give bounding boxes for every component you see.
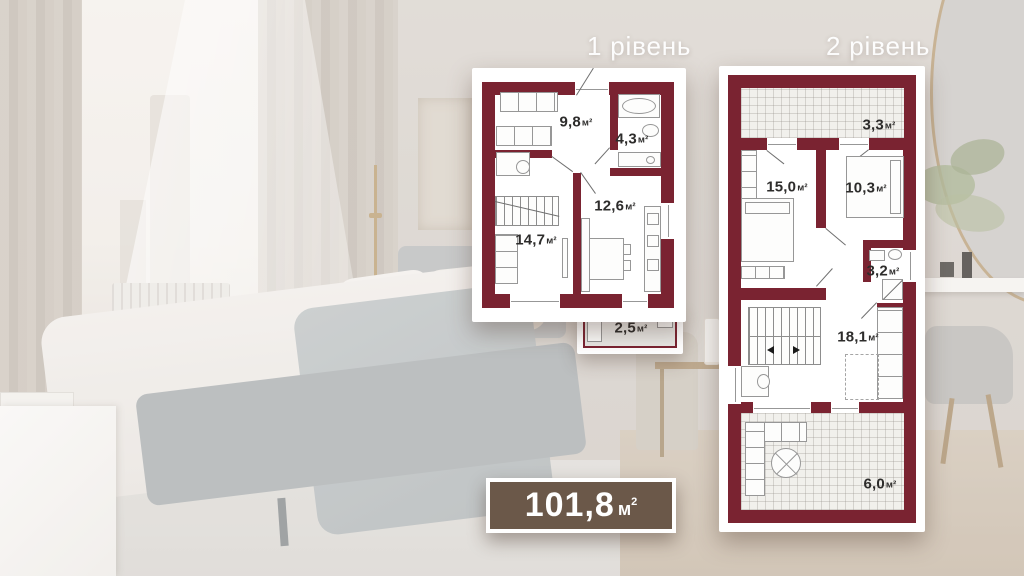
sofa <box>877 307 903 399</box>
wall-segment <box>741 288 826 300</box>
terrace-door-opening <box>839 138 869 150</box>
bathtub-basin <box>622 98 656 114</box>
bed-pillow <box>745 202 790 214</box>
door-leaf <box>825 228 846 245</box>
shower-diagonal <box>883 280 903 300</box>
balcony-door-opening <box>622 294 648 308</box>
sink <box>647 235 659 247</box>
plan2-panel: 3,3м² 15,0м² 10,3м² 3,2м² 18,1м² 6,0м² <box>719 66 925 532</box>
kitchen-counter <box>644 206 661 292</box>
area-unit: м² <box>797 183 808 194</box>
window-opening <box>753 402 811 413</box>
area-label-terrace-top: 3,3м² <box>862 117 895 134</box>
furniture-outline-dashed <box>845 354 879 400</box>
area-value: 14,7 <box>515 232 545 249</box>
area-value: 15,0 <box>766 179 796 196</box>
chair <box>623 260 631 271</box>
bench <box>741 266 785 279</box>
door-leaf <box>861 302 877 319</box>
wall-segment <box>728 75 916 88</box>
wardrobe <box>500 92 558 112</box>
stairs-landing-line <box>749 336 820 337</box>
area-label-hall2: 18,1м² <box>837 329 879 346</box>
total-area-power: 2 <box>631 496 637 508</box>
area-value: 10,3 <box>845 180 875 197</box>
total-area-value: 101,8 <box>525 486 615 525</box>
shower <box>882 279 903 300</box>
wall-segment <box>661 82 674 308</box>
wall-segment <box>816 150 826 228</box>
terrace-door-opening <box>831 402 859 413</box>
area-value: 4,3 <box>615 131 636 148</box>
tv-unit <box>562 238 568 278</box>
washbasin <box>869 250 885 261</box>
bathroom-door-leaf <box>595 147 610 164</box>
stairs <box>748 307 821 365</box>
terrace-door-opening <box>767 138 797 150</box>
area-unit: м² <box>889 267 900 278</box>
door-leaf <box>816 268 833 287</box>
stairs-arrow <box>767 346 774 354</box>
dining-table <box>588 238 624 280</box>
area-unit: м² <box>625 202 636 213</box>
window-opening <box>903 250 916 282</box>
bed <box>741 198 794 262</box>
area-label-balcony: 2,5м² <box>614 320 647 337</box>
washbasin-counter <box>618 152 661 167</box>
area-unit: м² <box>637 324 648 335</box>
office-chair <box>516 160 530 174</box>
wall-segment <box>573 173 581 294</box>
chair <box>623 244 631 255</box>
level1-title: 1 рівень <box>587 31 691 62</box>
wall-segment <box>610 168 663 176</box>
area-label-bathroom: 4,3м² <box>615 131 648 148</box>
bed-pillow <box>890 160 901 214</box>
area-value: 2,5 <box>614 320 635 337</box>
cabinet <box>496 126 552 146</box>
tall-cabinet <box>581 218 590 292</box>
window-opening <box>510 294 560 308</box>
plan1-panel: 9,8м² 4,3м² 12,6м² 14,7м² <box>472 68 686 322</box>
total-area-badge: 101,8 м 2 <box>486 478 676 533</box>
area-value: 12,6 <box>594 198 624 215</box>
wall-segment <box>728 75 741 523</box>
wall-segment <box>728 510 916 523</box>
area-label-bedroom-right: 10,3м² <box>845 180 887 197</box>
office-chair <box>757 374 770 389</box>
promo-image: 1 рівень 2 рівень 2,5м² <box>0 0 1024 576</box>
area-unit: м² <box>885 121 896 132</box>
window-opening <box>728 366 741 404</box>
bathtub <box>618 94 660 118</box>
area-label-bathroom2: 3,2м² <box>866 263 899 280</box>
kitchen-door-leaf <box>580 172 596 194</box>
area-value: 6,0 <box>863 476 884 493</box>
toilet <box>888 249 902 260</box>
area-unit: м² <box>546 236 557 247</box>
living-door-leaf <box>551 156 573 172</box>
area-value: 3,3 <box>862 117 883 134</box>
appliance <box>647 259 659 271</box>
area-label-living: 14,7м² <box>515 232 557 249</box>
area-unit: м² <box>582 118 593 129</box>
stove <box>647 213 659 225</box>
area-label-hallway: 9,8м² <box>559 114 592 131</box>
area-label-kitchen: 12,6м² <box>594 198 636 215</box>
area-unit: м² <box>638 135 649 146</box>
wall-segment <box>482 82 495 308</box>
area-unit: м² <box>886 480 897 491</box>
wall-segment <box>903 75 916 523</box>
area-value: 18,1 <box>837 329 867 346</box>
stairs-arrow <box>793 346 800 354</box>
area-label-terrace-bottom: 6,0м² <box>863 476 896 493</box>
total-area-unit: м <box>618 499 631 520</box>
window-opening <box>661 203 674 239</box>
sink <box>646 156 655 164</box>
wardrobe <box>741 150 757 204</box>
area-value: 9,8 <box>559 114 580 131</box>
corner-sofa <box>745 422 765 496</box>
area-label-bedroom-left: 15,0м² <box>766 179 808 196</box>
door-leaf <box>766 150 784 164</box>
stairs <box>495 196 559 226</box>
level2-title: 2 рівень <box>826 31 930 62</box>
area-value: 3,2 <box>866 263 887 280</box>
area-unit: м² <box>868 333 879 344</box>
wall-segment <box>741 138 904 150</box>
area-unit: м² <box>876 184 887 195</box>
round-table <box>771 448 801 478</box>
